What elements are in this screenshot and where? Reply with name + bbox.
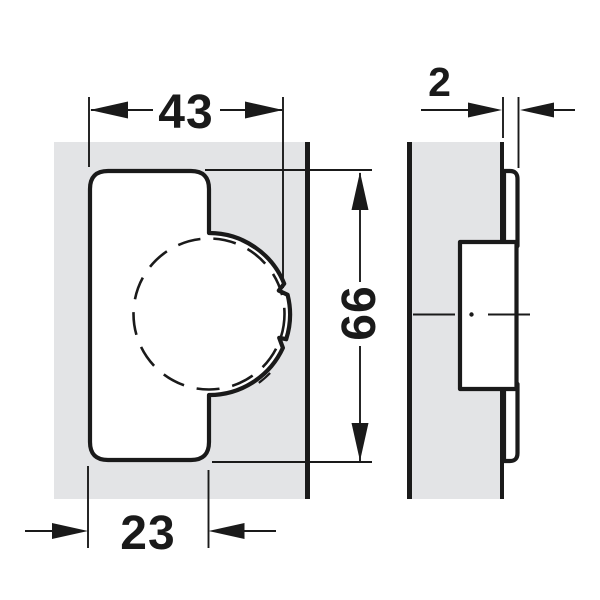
arrowhead-right-icon (468, 103, 502, 118)
arrowhead-left-icon (520, 103, 554, 118)
drawing-canvas: 43 66 23 2 (0, 0, 600, 600)
arrowhead-left-icon (209, 523, 245, 539)
centerline-dot (469, 312, 473, 316)
flange-tab-top (504, 171, 518, 246)
arrowhead-right-icon (52, 523, 88, 539)
dimension-label-height: 66 (333, 285, 386, 340)
flange-tab-bottom (504, 384, 518, 461)
hinge-technical-drawing: 43 66 23 2 (0, 0, 600, 600)
side-view (410, 142, 531, 499)
dimension-label-top-width: 43 (158, 86, 213, 139)
arrowhead-down-icon (352, 423, 369, 461)
dimension-label-bottom-offset: 23 (120, 507, 175, 560)
arrowhead-up-icon (352, 172, 369, 210)
arrowhead-left-icon (90, 102, 128, 119)
dimension-label-side-gap: 2 (428, 59, 452, 105)
arrowhead-right-icon (245, 102, 283, 119)
